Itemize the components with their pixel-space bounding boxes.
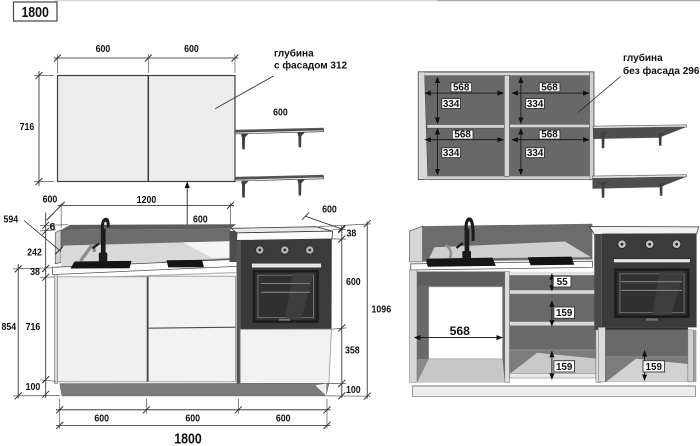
svg-text:1800: 1800 — [174, 432, 202, 446]
svg-text:854: 854 — [2, 321, 17, 333]
svg-text:334: 334 — [443, 148, 460, 159]
svg-text:с фасадом 312: с фасадом 312 — [274, 59, 348, 71]
svg-text:глубина: глубина — [623, 52, 663, 64]
svg-text:716: 716 — [26, 321, 41, 333]
svg-text:334: 334 — [443, 99, 460, 110]
svg-text:600: 600 — [96, 43, 111, 55]
svg-text:600: 600 — [276, 413, 291, 425]
svg-text:без фасада 296: без фасада 296 — [623, 65, 700, 77]
svg-text:600: 600 — [43, 194, 58, 206]
svg-text:358: 358 — [345, 345, 360, 357]
svg-text:159: 159 — [556, 308, 573, 319]
svg-text:334: 334 — [527, 148, 544, 159]
svg-text:568: 568 — [541, 130, 558, 141]
svg-text:600: 600 — [322, 204, 337, 216]
svg-text:100: 100 — [26, 381, 41, 393]
svg-text:159: 159 — [556, 362, 573, 373]
svg-text:55: 55 — [557, 277, 568, 288]
svg-text:568: 568 — [450, 324, 471, 338]
svg-text:334: 334 — [527, 99, 544, 110]
svg-text:594: 594 — [4, 213, 19, 225]
svg-text:242: 242 — [27, 247, 42, 259]
svg-text:600: 600 — [273, 106, 288, 118]
svg-text:38: 38 — [347, 228, 357, 240]
svg-text:600: 600 — [193, 213, 208, 225]
svg-text:600: 600 — [346, 276, 361, 288]
svg-text:159: 159 — [646, 362, 663, 373]
svg-text:568: 568 — [453, 82, 470, 93]
svg-text:600: 600 — [184, 43, 199, 55]
svg-text:38: 38 — [30, 266, 40, 278]
svg-text:600: 600 — [94, 413, 109, 425]
svg-text:716: 716 — [20, 121, 35, 133]
svg-text:глубина: глубина — [274, 48, 314, 60]
svg-text:1800: 1800 — [21, 5, 49, 21]
svg-text:568: 568 — [541, 82, 558, 93]
svg-text:600: 600 — [185, 413, 200, 425]
svg-text:1096: 1096 — [372, 303, 392, 315]
svg-text:6: 6 — [50, 221, 56, 233]
svg-text:1200: 1200 — [137, 194, 157, 206]
svg-text:568: 568 — [454, 130, 471, 141]
svg-text:100: 100 — [346, 384, 361, 396]
